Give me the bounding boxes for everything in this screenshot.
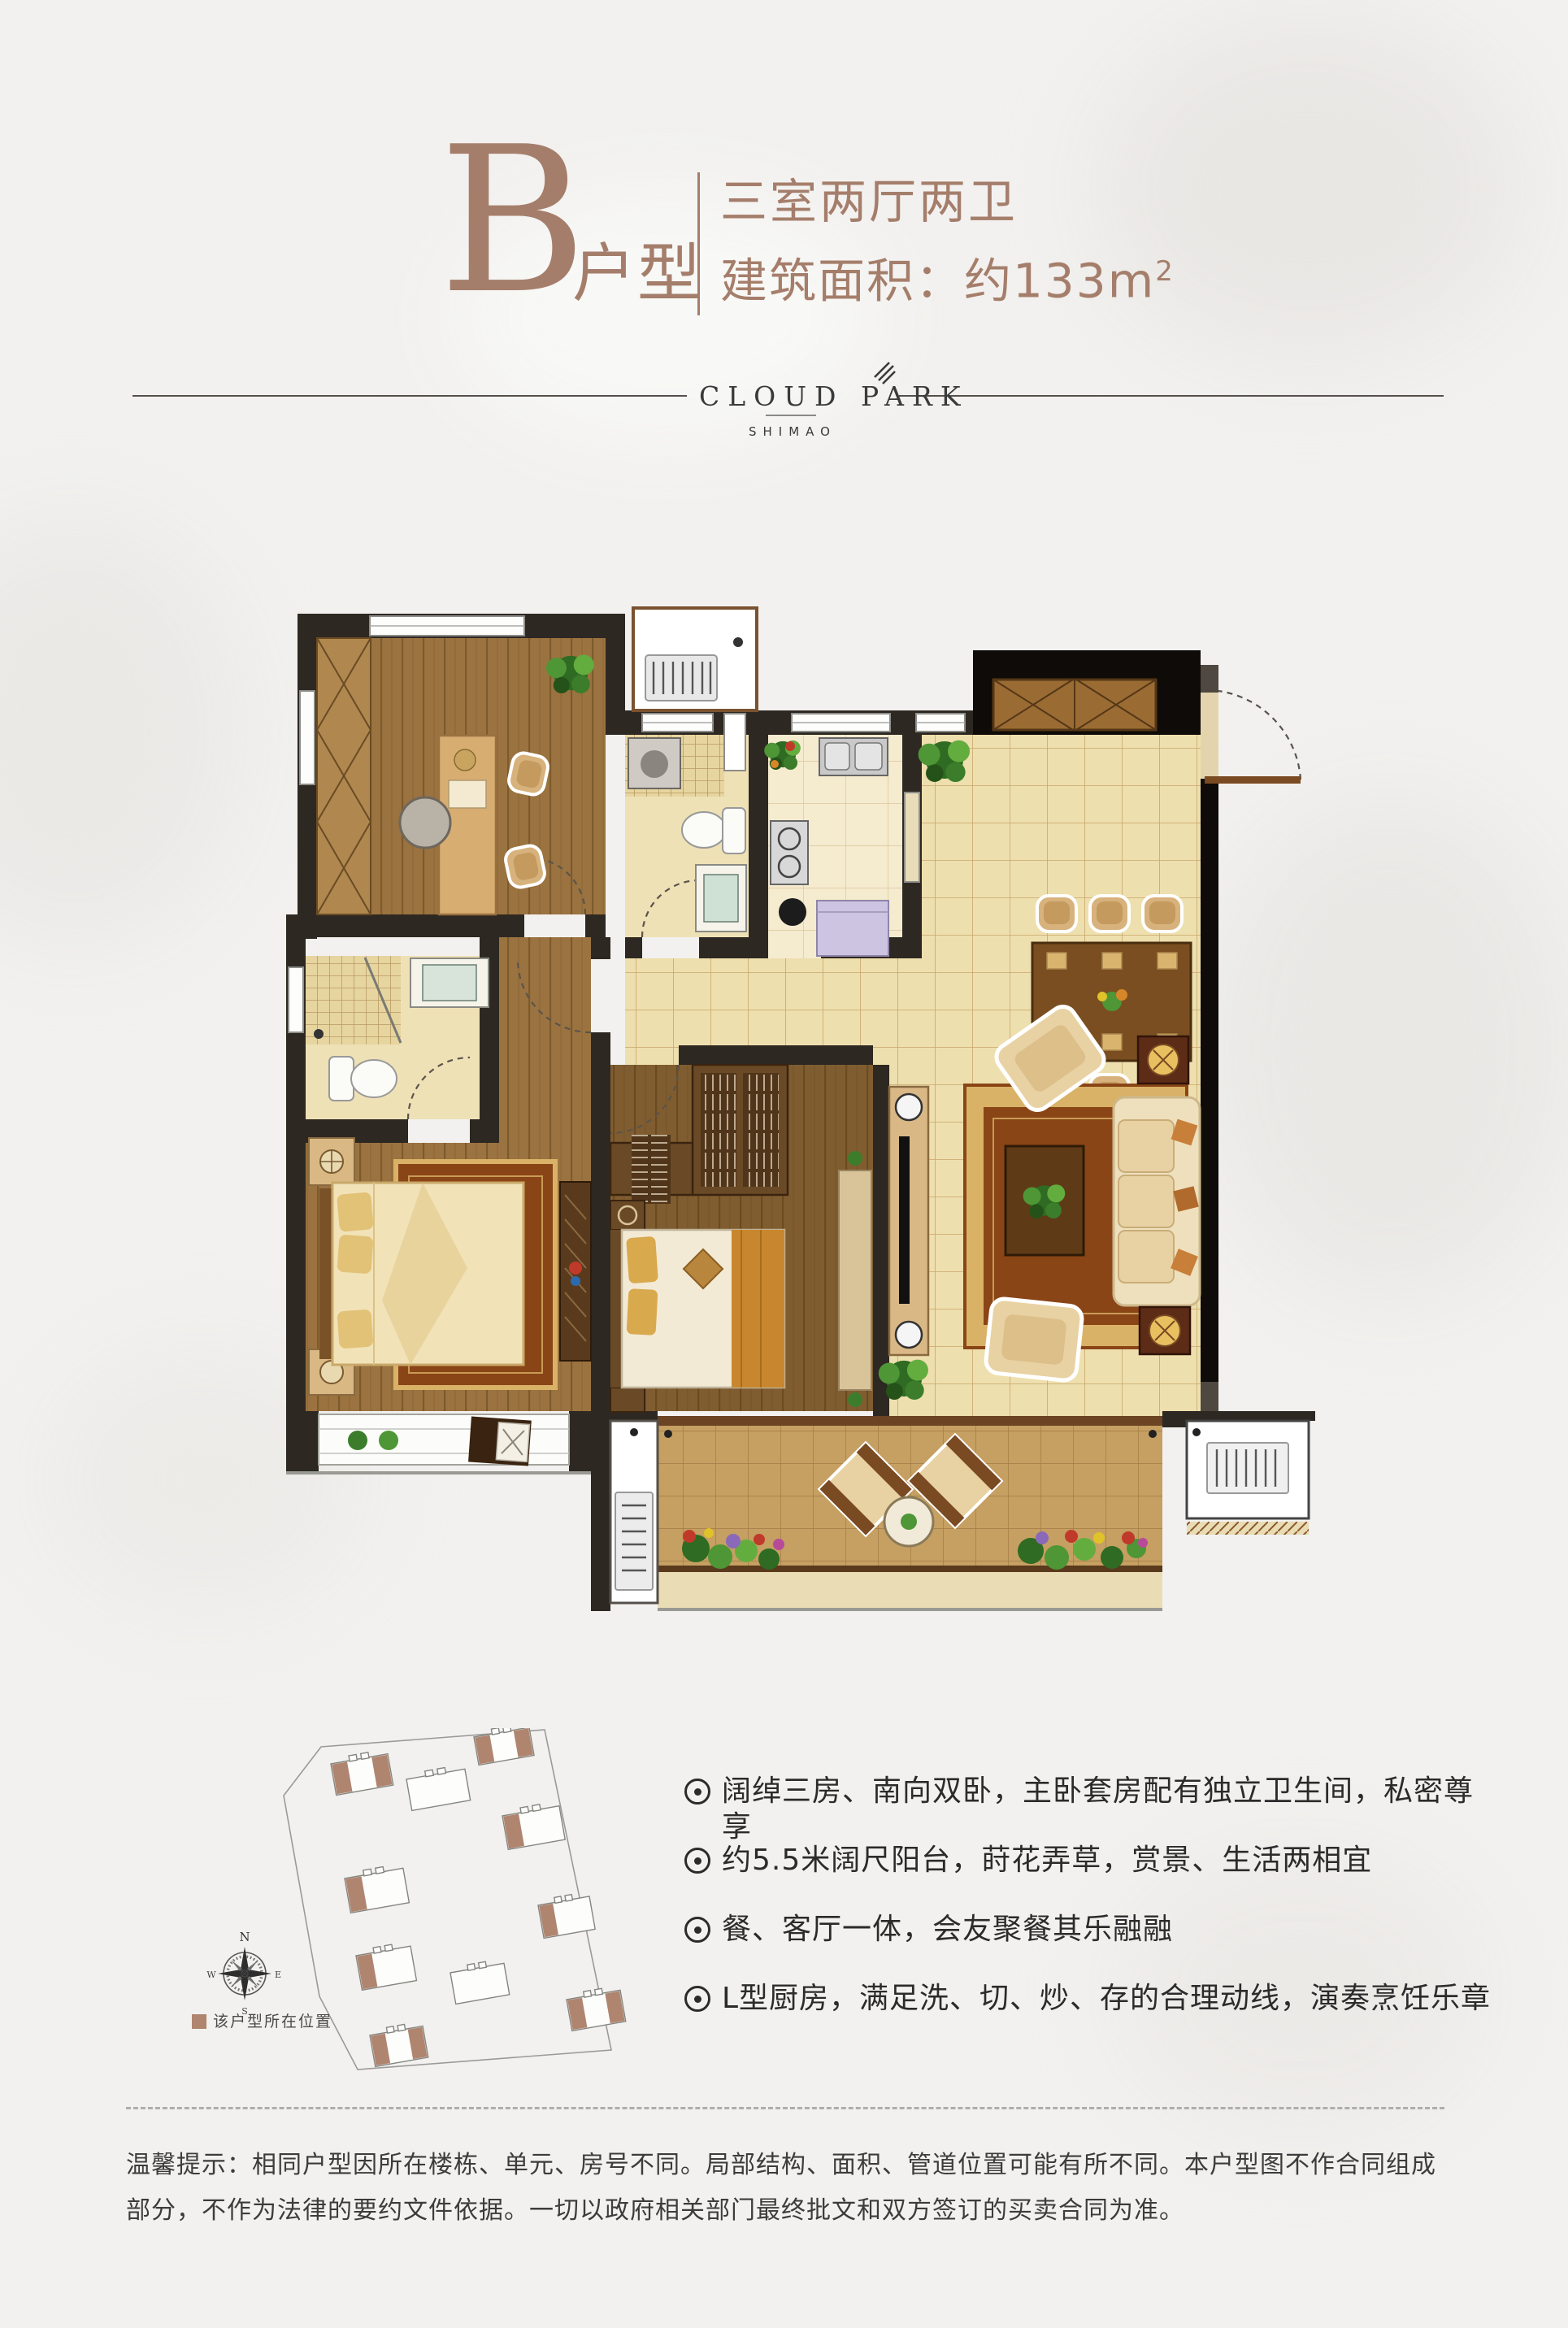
- legend-swatch: [192, 2014, 206, 2029]
- site-building: [502, 1801, 565, 1850]
- site-building: [566, 1985, 626, 2030]
- spec-area: 建筑面积：约133m2: [720, 244, 1175, 308]
- logo-subname: SHIMAO: [699, 424, 886, 439]
- header: B 户型 三室两厅两卫 建筑面积：约133m2: [0, 0, 1568, 341]
- feature-text: 约5.5米阔尺阳台，莳花弄草，赏景、生活两相宜: [722, 1843, 1372, 1878]
- floor-plan: [276, 593, 1366, 1634]
- wok: [779, 898, 806, 926]
- logo-rule-right: [899, 395, 1444, 397]
- logo-name: CLOUD PARK: [699, 380, 886, 412]
- bullet-icon: [684, 1986, 710, 2012]
- study-chair: [400, 797, 450, 848]
- legend-label: 该户型所在位置: [213, 2013, 332, 2030]
- stove: [771, 821, 808, 884]
- bath-door-leaf: [724, 714, 745, 771]
- sofa: [1114, 1097, 1200, 1305]
- site-legend: 该户型所在位置: [192, 2013, 332, 2030]
- nightstand: [610, 1201, 645, 1230]
- site-building: [537, 1891, 595, 1938]
- site-building: [406, 1764, 471, 1810]
- equipment-platform: [633, 608, 757, 710]
- ac-platform: [1187, 1421, 1309, 1535]
- svg-text:N: N: [239, 1930, 250, 1944]
- bullet-icon: [684, 1779, 710, 1805]
- utility-box-left: [610, 1421, 658, 1603]
- site-building: [330, 1749, 393, 1796]
- logo-seal-icon: [868, 356, 901, 389]
- master-bedroom-furniture: [309, 1138, 591, 1395]
- bullet-icon: [684, 1917, 710, 1943]
- water-heater: [615, 1492, 653, 1590]
- site-plan: N E S W 该户型所在位置: [177, 1728, 706, 2114]
- toilet: [329, 1057, 354, 1101]
- svg-text:W: W: [206, 1970, 216, 1980]
- site-building: [344, 1863, 409, 1913]
- master-hall-floor: [499, 937, 591, 1143]
- bed2: [610, 1230, 784, 1388]
- header-divider: [697, 172, 700, 315]
- site-building: [450, 1958, 510, 2004]
- feature-list: 阔绰三房、南向双卧，主卧套房配有独立卫生间，私密尊享 约5.5米阔尺阳台，莳花弄…: [684, 1774, 1497, 2050]
- spec-area-text: 建筑面积：约133m: [720, 253, 1155, 308]
- bullet-icon: [684, 1848, 710, 1874]
- toilet: [682, 812, 726, 848]
- dashed-separator: [126, 2107, 1444, 2109]
- feature-item: 阔绰三房、南向双卧，主卧套房配有独立卫生间，私密尊享: [684, 1774, 1497, 1843]
- feature-text: 阔绰三房、南向双卧，主卧套房配有独立卫生间，私密尊享: [722, 1774, 1497, 1845]
- site-building: [369, 2022, 428, 2067]
- entry-door-leaf: [1205, 776, 1301, 784]
- unit-suffix: 户型: [572, 241, 702, 307]
- logo-rule-left: [132, 395, 687, 397]
- master-bed: [319, 1183, 523, 1365]
- logo-row: CLOUD PARK SHIMAO: [0, 350, 1568, 439]
- poster-page: B 户型 三室两厅两卫 建筑面积：约133m2 CLOUD PARK SHIMA…: [0, 0, 1568, 2328]
- tv: [899, 1136, 910, 1304]
- nightstand: [610, 1388, 645, 1412]
- feature-item: 餐、客厅一体，会友聚餐其乐融融: [684, 1912, 1497, 1981]
- window-seat: [839, 1171, 871, 1390]
- feature-item: L型厨房，满足洗、切、炒、存的合理动线，演奏烹饪乐章: [684, 1981, 1497, 2050]
- feature-item: 约5.5米阔尺阳台，莳花弄草，赏景、生活两相宜: [684, 1843, 1497, 1912]
- compass-icon: N E S W: [206, 1930, 281, 2017]
- bg-blob: [0, 520, 244, 943]
- spec-rooms: 三室两厅两卫: [720, 174, 1018, 229]
- master-bay-window: [286, 1414, 591, 1475]
- balcony-sill: [658, 1572, 1162, 1608]
- fridge: [817, 901, 888, 956]
- logo-underline: [766, 415, 816, 416]
- site-building: [355, 1941, 416, 1990]
- balcony-rail: [658, 1566, 1162, 1572]
- spec-area-sup: 2: [1155, 255, 1175, 288]
- site-building: [473, 1728, 534, 1765]
- feature-text: L型厨房，满足洗、切、炒、存的合理动线，演奏烹饪乐章: [722, 1981, 1491, 2017]
- armchair: [984, 1297, 1083, 1381]
- unit-letter: B: [439, 120, 587, 322]
- disclaimer-text: 温馨提示：相同户型因所在楼栋、单元、房号不同。局部结构、面积、管道位置可能有所不…: [126, 2143, 1451, 2234]
- feature-text: 餐、客厅一体，会友聚餐其乐融融: [722, 1912, 1173, 1948]
- balcony-slider: [658, 1416, 1162, 1426]
- svg-text:E: E: [275, 1970, 281, 1980]
- site-buildings: [330, 1728, 626, 2066]
